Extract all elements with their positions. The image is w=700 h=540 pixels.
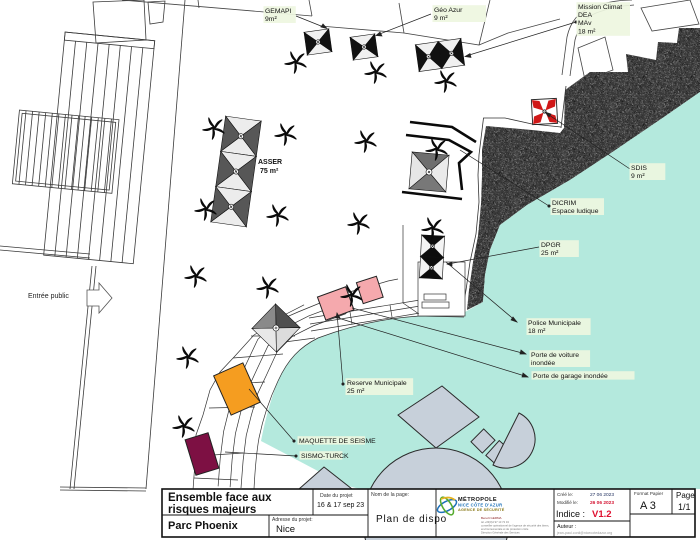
svg-text:Porte de garage inondée: Porte de garage inondée: [533, 373, 608, 380]
svg-text:MAQUETTE DE SEISME: MAQUETTE DE SEISME: [299, 438, 376, 445]
svg-text:Page: Page: [676, 491, 695, 500]
svg-text:18 m²: 18 m²: [578, 28, 596, 35]
svg-text:26 06 2023: 26 06 2023: [590, 500, 614, 506]
svg-text:NICE CÔTE D'AZUR: NICE CÔTE D'AZUR: [458, 503, 502, 508]
svg-text:Créé le:: Créé le:: [557, 492, 573, 497]
svg-text:Porte de voiture: Porte de voiture: [531, 352, 579, 359]
svg-text:environnementale et de protect: environnementale et de protection civile: [481, 527, 529, 531]
svg-text:risques majeurs: risques majeurs: [168, 504, 256, 516]
svg-text:SDIS: SDIS: [631, 165, 647, 172]
svg-text:25 m²: 25 m²: [347, 388, 365, 395]
svg-text:Espace ludique: Espace ludique: [552, 208, 599, 215]
svg-text:16 & 17 sep 23: 16 & 17 sep 23: [317, 502, 364, 509]
svg-text:GEMAPI: GEMAPI: [265, 8, 292, 15]
svg-text:Indice :: Indice :: [556, 509, 585, 519]
svg-text:Nom de la page:: Nom de la page:: [371, 492, 409, 498]
svg-text:Nice: Nice: [276, 524, 295, 535]
svg-text:Entrée public: Entrée public: [28, 293, 69, 300]
svg-text:9 m²: 9 m²: [631, 173, 645, 180]
svg-text:25 m²: 25 m²: [541, 250, 559, 257]
svg-text:27 06 2023: 27 06 2023: [590, 492, 614, 498]
svg-text:Benoît GERMA: Benoît GERMA: [481, 516, 502, 520]
svg-text:V1.2: V1.2: [592, 509, 612, 520]
svg-text:Plan de dispo: Plan de dispo: [376, 514, 447, 525]
svg-text:75 m²: 75 m²: [260, 168, 279, 175]
svg-text:A 3: A 3: [640, 500, 656, 512]
svg-text:SISMO-TURCK: SISMO-TURCK: [301, 453, 349, 460]
svg-text:tel +33(0)4 97 13 72 34: tel +33(0)4 97 13 72 34: [481, 520, 509, 524]
svg-text:DPGR: DPGR: [541, 242, 561, 249]
svg-text:DEA: DEA: [578, 12, 592, 19]
svg-text:MAv: MAv: [578, 20, 592, 27]
svg-text:AGENCE DE SÉCURITÉ: AGENCE DE SÉCURITÉ: [458, 507, 505, 512]
svg-text:Parc Phoenix: Parc Phoenix: [168, 520, 239, 532]
svg-text:9m²: 9m²: [265, 16, 277, 23]
svg-text:Reserve Municipale: Reserve Municipale: [347, 380, 407, 387]
svg-text:9 m²: 9 m²: [434, 15, 448, 22]
svg-text:Date du projet: Date du projet: [320, 493, 353, 499]
svg-text:conseiller opérationnel de l'a: conseiller opérationnel de l'agence de s…: [481, 524, 549, 528]
svg-text:Modifié le:: Modifié le:: [557, 500, 578, 505]
svg-text:Ensemble face aux: Ensemble face aux: [168, 492, 272, 504]
svg-text:jean-paul.conil@nicecotedazur.: jean-paul.conil@nicecotedazur.org: [556, 531, 612, 535]
svg-text:Géo Azur: Géo Azur: [434, 7, 463, 14]
svg-text:Direction Générale des Service: Direction Générale des Services: [481, 531, 520, 535]
svg-text:Police Municipale: Police Municipale: [528, 320, 581, 327]
svg-text:Adresse du projet:: Adresse du projet:: [272, 517, 313, 523]
svg-text:Mission Climat: Mission Climat: [578, 4, 622, 11]
svg-text:Auteur :: Auteur :: [557, 524, 577, 530]
svg-text:1/1: 1/1: [678, 502, 691, 512]
svg-text:Format Papier: Format Papier: [634, 491, 664, 496]
svg-text:18 m²: 18 m²: [528, 328, 546, 335]
svg-text:ASSER: ASSER: [258, 159, 282, 166]
svg-text:DICRIM: DICRIM: [552, 200, 577, 207]
svg-text:inondée: inondée: [531, 360, 555, 367]
